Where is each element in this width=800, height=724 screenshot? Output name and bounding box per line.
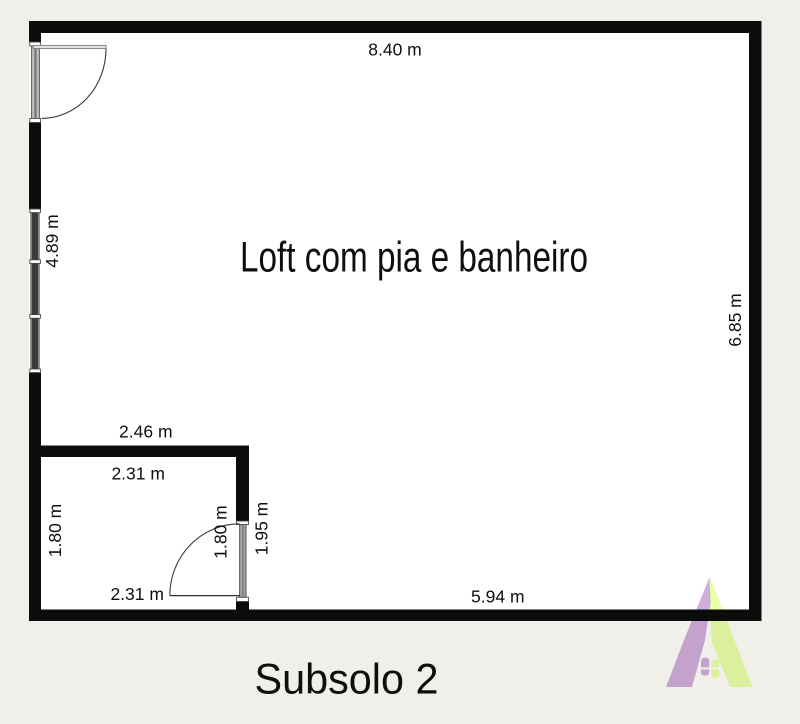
svg-text:2.31 m: 2.31 m xyxy=(110,584,164,604)
svg-text:4.89 m: 4.89 m xyxy=(42,214,62,268)
svg-text:Loft com pia e banheiro: Loft com pia e banheiro xyxy=(240,234,588,282)
svg-text:2.31 m: 2.31 m xyxy=(111,464,165,484)
svg-text:2.46 m: 2.46 m xyxy=(119,422,173,442)
svg-text:5.94 m: 5.94 m xyxy=(471,586,525,606)
svg-text:1.80 m: 1.80 m xyxy=(45,504,65,558)
svg-text:6.85 m: 6.85 m xyxy=(725,293,745,347)
svg-text:1.80 m: 1.80 m xyxy=(211,505,231,559)
svg-text:1.95 m: 1.95 m xyxy=(252,502,272,556)
svg-text:8.40 m: 8.40 m xyxy=(368,40,422,60)
svg-text:Subsolo 2: Subsolo 2 xyxy=(255,656,439,704)
